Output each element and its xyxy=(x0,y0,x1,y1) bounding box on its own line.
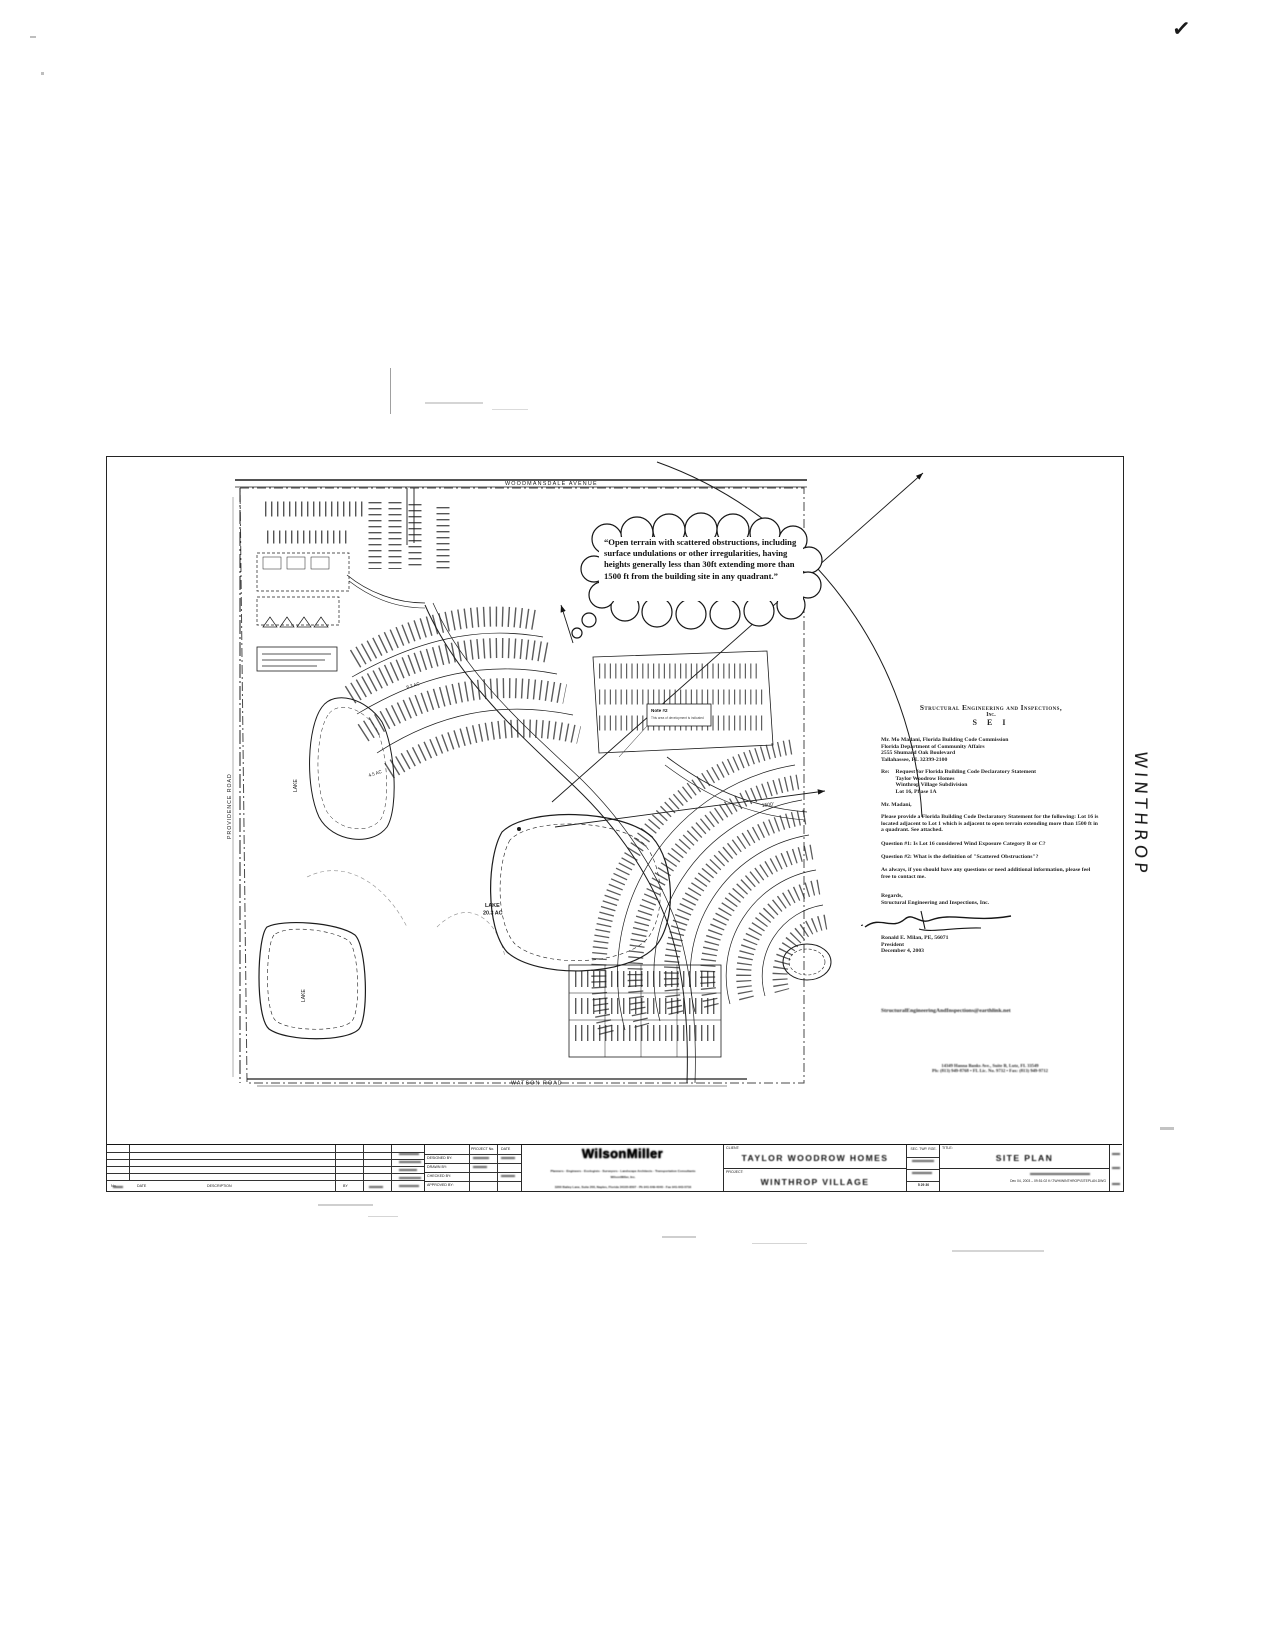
note-title: Note #2 xyxy=(651,708,668,713)
re-line: Request for Florida Building Code Declar… xyxy=(896,769,1037,776)
sheet-number-cell xyxy=(1110,1145,1122,1191)
note-body: This area of development is indicated xyxy=(651,716,704,720)
scan-smudge xyxy=(492,409,528,410)
re-line: Taylor Woodrow Homes xyxy=(896,776,1037,783)
declaratory-statement-letter: Structural Engineering and Inspections, … xyxy=(875,703,1107,1103)
letter-firm-abbr: S E I xyxy=(875,718,1107,727)
scanned-site-plan-page: { "artifacts": { "checkmark": "✓", "hand… xyxy=(0,0,1275,1649)
sheet-title: SITE PLAN xyxy=(940,1153,1109,1163)
re-line: Lot 16, Phase 1A xyxy=(896,789,1037,796)
project-label: PROJECT: xyxy=(726,1170,743,1174)
scan-smudge xyxy=(425,402,483,404)
label-woodmansdale-avenue: WOODMANSDALE AVENUE xyxy=(505,481,598,487)
central-residential-fan xyxy=(350,617,579,771)
wind-terrain-callout-text: “Open terrain with scattered obstruction… xyxy=(604,537,802,601)
scan-smudge xyxy=(662,1236,696,1238)
letter-recipient-block: Mr. Mo Madani, Florida Building Code Com… xyxy=(881,737,1099,764)
handwritten-checkmark: ✓ xyxy=(1171,15,1192,43)
sec-twp-rge-label: SEC. TWP. RGE. xyxy=(908,1147,939,1151)
label-lake-west: LAKE xyxy=(293,779,299,792)
credits-designed-by: DESIGNED BY: xyxy=(427,1156,452,1160)
drawing-sheet-frame: WOODMANSDALE AVENUE PROVIDENCE ROAD WATS… xyxy=(106,456,1124,1192)
closing-line: Regards, xyxy=(881,893,1099,900)
credits-checked-by: CHECKED BY: xyxy=(427,1174,451,1178)
revision-table: No. DATE DESCRIPTION BY xyxy=(107,1145,425,1191)
firm-subname: WilsonMiller, Inc. xyxy=(524,1175,722,1179)
re-line: Winthrop Village Subdivision xyxy=(896,782,1037,789)
letter-salutation: Mr. Madani, xyxy=(881,802,1099,809)
footer-phones: Ph: (813) 949-8768 • FL Lic. No. 9732 • … xyxy=(881,1068,1099,1073)
road-providence xyxy=(233,488,240,1083)
project-name: WINTHROP VILLAGE xyxy=(724,1177,906,1187)
client-label: CLIENT: xyxy=(726,1146,739,1150)
letter-email-line: StructuralEngineeringAndInspections@eart… xyxy=(881,1008,1099,1015)
label-area-1: 4.5 AC xyxy=(368,769,383,778)
letter-paragraph-2: As always, if you should have any questi… xyxy=(881,867,1099,880)
signature-scrawl xyxy=(861,907,1051,937)
firm-tagline: Planners · Engineers · Ecologists · Surv… xyxy=(524,1169,722,1173)
letter-signature-block: Ronald E. Milan, PE, 56071 President Dec… xyxy=(881,935,1099,955)
credits-table: PROJECT No. DATE DESIGNED BY: DRAWN BY: … xyxy=(425,1145,522,1191)
scan-smudge xyxy=(368,1216,398,1217)
credits-approved-by: APPROVED BY: xyxy=(427,1183,454,1187)
firm-address: 3200 Bailey Lane, Suite 200, Naples, Flo… xyxy=(524,1185,722,1189)
letter-closing: Regards, Structural Engineering and Insp… xyxy=(881,893,1099,906)
client-name: TAYLOR WOODROW HOMES xyxy=(724,1153,906,1163)
rev-date-label: DATE xyxy=(137,1184,146,1188)
southeast-residential-fan xyxy=(599,747,831,1035)
sheet-title-cell: TITLE: SITE PLAN Dec 04, 2003 – 09:51:02… xyxy=(940,1145,1110,1191)
credits-header-date: DATE xyxy=(501,1147,510,1151)
letter-date: December 4, 2003 xyxy=(881,948,1099,955)
re-lines: Request for Florida Building Code Declar… xyxy=(896,769,1037,796)
scan-smudge xyxy=(318,1204,373,1206)
callout-pointer-arrow xyxy=(561,605,573,643)
letter-re-block: Re: Request for Florida Building Code De… xyxy=(881,769,1099,796)
east-development-cluster xyxy=(593,651,773,753)
scan-speck xyxy=(30,36,36,38)
south-grid-lots xyxy=(569,965,721,1057)
wind-exposure-wedge xyxy=(517,462,923,831)
rev-desc-label: DESCRIPTION xyxy=(207,1184,232,1188)
title-label: TITLE: xyxy=(942,1146,953,1150)
title-block: No. DATE DESCRIPTION BY PROJE xyxy=(107,1144,1122,1191)
label-providence-road: PROVIDENCE ROAD xyxy=(227,773,233,839)
signer-name: Ronald E. Milan, PE, 56071 xyxy=(881,935,1099,942)
label-lake-south: LAKE xyxy=(301,989,307,1002)
recipient-line: Mr. Mo Madani, Florida Building Code Com… xyxy=(881,737,1099,744)
scan-line-artifact xyxy=(390,368,391,414)
wilsonmiller-logo: WilsonMiller xyxy=(522,1146,723,1161)
scan-smudge xyxy=(1160,1127,1174,1130)
label-lake-central-1: LAKE xyxy=(485,903,500,909)
handwritten-winthrop-label: WINTHROP xyxy=(1130,751,1150,892)
scan-speck xyxy=(41,72,44,75)
lake-west xyxy=(310,698,395,840)
credits-drawn-by: DRAWN BY: xyxy=(427,1165,447,1169)
label-lake-central-2: 20.3 AC xyxy=(483,911,503,917)
label-area-2: 8.2 AC xyxy=(406,681,421,690)
scan-smudge xyxy=(752,1243,807,1244)
letter-firm-name: Structural Engineering and Inspections, xyxy=(875,703,1107,712)
closing-line: Structural Engineering and Inspections, … xyxy=(881,900,1099,907)
label-watson-road: WATSON ROAD xyxy=(511,1081,563,1087)
sec-twp-rge-values: 5 29 30 xyxy=(908,1183,939,1187)
recipient-line: 2555 Shumard Oak Boulevard xyxy=(881,750,1099,757)
letter-footer: 14349 Hanna Banks Ave., Suite B, Lutz, F… xyxy=(881,1063,1099,1073)
section-township-range-cell: SEC. TWP. RGE. 5 29 30 xyxy=(907,1145,940,1191)
signer-title: President xyxy=(881,942,1099,949)
recipient-line: Tallahassee, FL 32399-2100 xyxy=(881,757,1099,764)
letter-question-1: Question #1: Is Lot 16 considered Wind E… xyxy=(881,841,1099,848)
letter-question-2: Question #2: What is the definition of "… xyxy=(881,854,1099,861)
re-label: Re: xyxy=(881,769,890,796)
letter-paragraph-1: Please provide a Florida Building Code D… xyxy=(881,814,1099,834)
client-project-cell: CLIENT: TAYLOR WOODROW HOMES PROJECT: WI… xyxy=(724,1145,907,1191)
recipient-line: Florida Department of Community Affairs xyxy=(881,744,1099,751)
plot-stamp: Dec 04, 2003 – 09:51:02 K:\TWH\WINTHROP\… xyxy=(944,1179,1106,1183)
scan-smudge xyxy=(952,1250,1044,1252)
rev-by-label: BY xyxy=(343,1184,348,1188)
credits-header-project: PROJECT No. xyxy=(471,1147,494,1151)
northwest-development-cluster xyxy=(257,488,443,671)
firm-logo-cell: WilsonMiller Planners · Engineers · Ecol… xyxy=(522,1145,724,1191)
lake-southwest xyxy=(259,923,365,1039)
